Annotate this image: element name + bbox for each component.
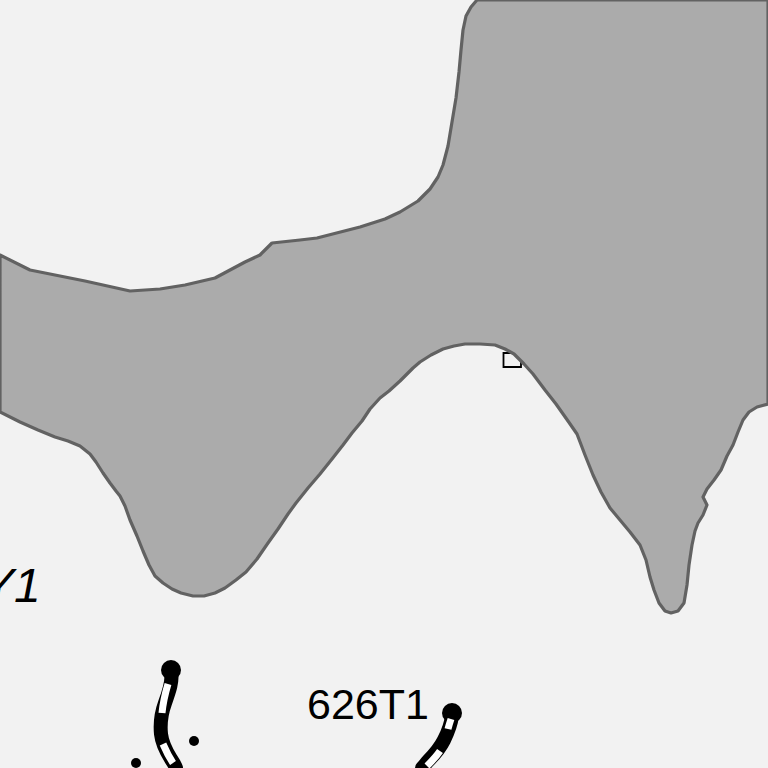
dashed-trail-right-dash bbox=[448, 719, 451, 729]
dashed-trail-left-endpoint-dot bbox=[161, 660, 181, 680]
map-viewport: 626T1 Y1 bbox=[0, 0, 768, 768]
trail-label-626t1: 626T1 bbox=[307, 680, 429, 728]
trail-label-partial-left-edge: Y1 bbox=[0, 559, 41, 612]
waypoint-dot bbox=[131, 758, 141, 768]
map-geometry-layer bbox=[0, 0, 768, 768]
map-canvas: 626T1 Y1 bbox=[0, 0, 768, 768]
waypoint-dot bbox=[189, 736, 199, 746]
